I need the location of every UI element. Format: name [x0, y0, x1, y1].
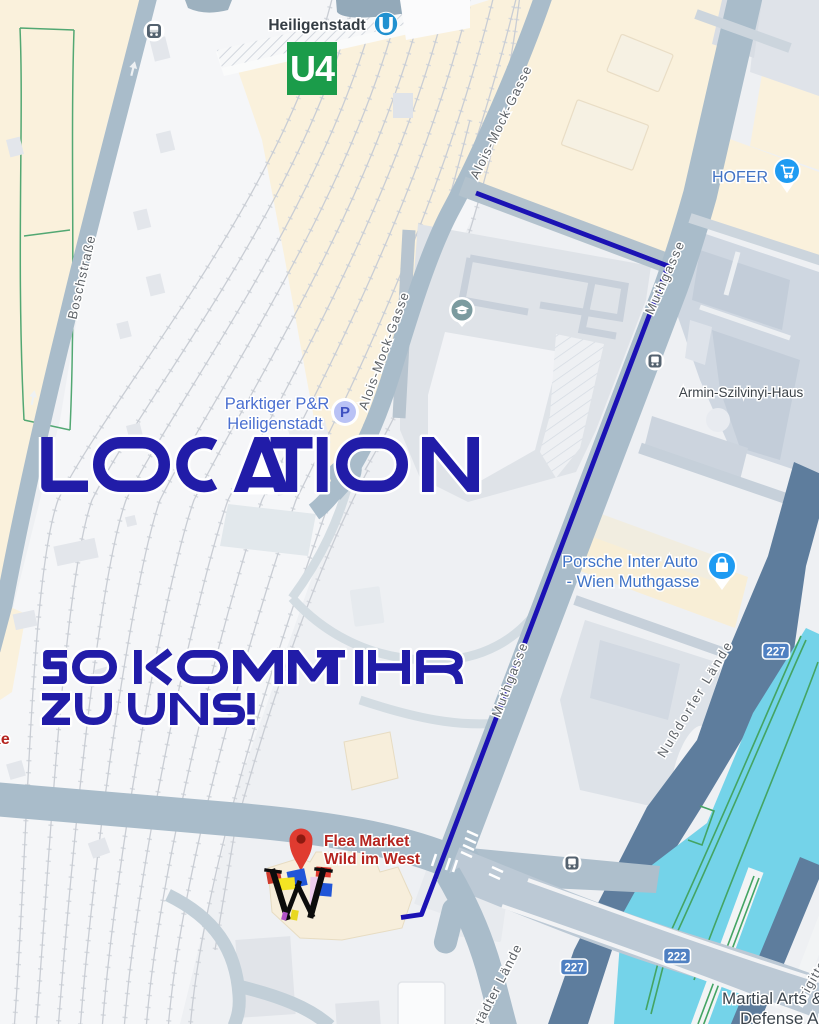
svg-text:Porsche Inter Auto: Porsche Inter Auto	[562, 553, 698, 571]
svg-text:U4: U4	[290, 48, 335, 89]
svg-text:227: 227	[564, 962, 583, 974]
svg-text:ke: ke	[0, 731, 10, 748]
svg-text:Heiligenstadt: Heiligenstadt	[227, 415, 323, 433]
svg-text:Martial Arts &: Martial Arts &	[722, 989, 819, 1008]
svg-text:227: 227	[766, 646, 785, 658]
svg-text:HOFER: HOFER	[712, 169, 768, 186]
svg-text:Flea Market: Flea Market	[324, 833, 409, 850]
svg-text:Heiligenstadt: Heiligenstadt	[268, 17, 365, 34]
svg-text:P: P	[340, 404, 350, 421]
svg-text:Parktiger P&R: Parktiger P&R	[225, 395, 330, 413]
svg-text:222: 222	[667, 951, 686, 963]
svg-text:- Wien Muthgasse: - Wien Muthgasse	[567, 573, 700, 591]
svg-text:Wild im West: Wild im West	[324, 851, 420, 868]
svg-text:Armin-Szilvinyi-Haus: Armin-Szilvinyi-Haus	[679, 385, 804, 400]
svg-text:Defense Au: Defense Au	[740, 1009, 819, 1024]
